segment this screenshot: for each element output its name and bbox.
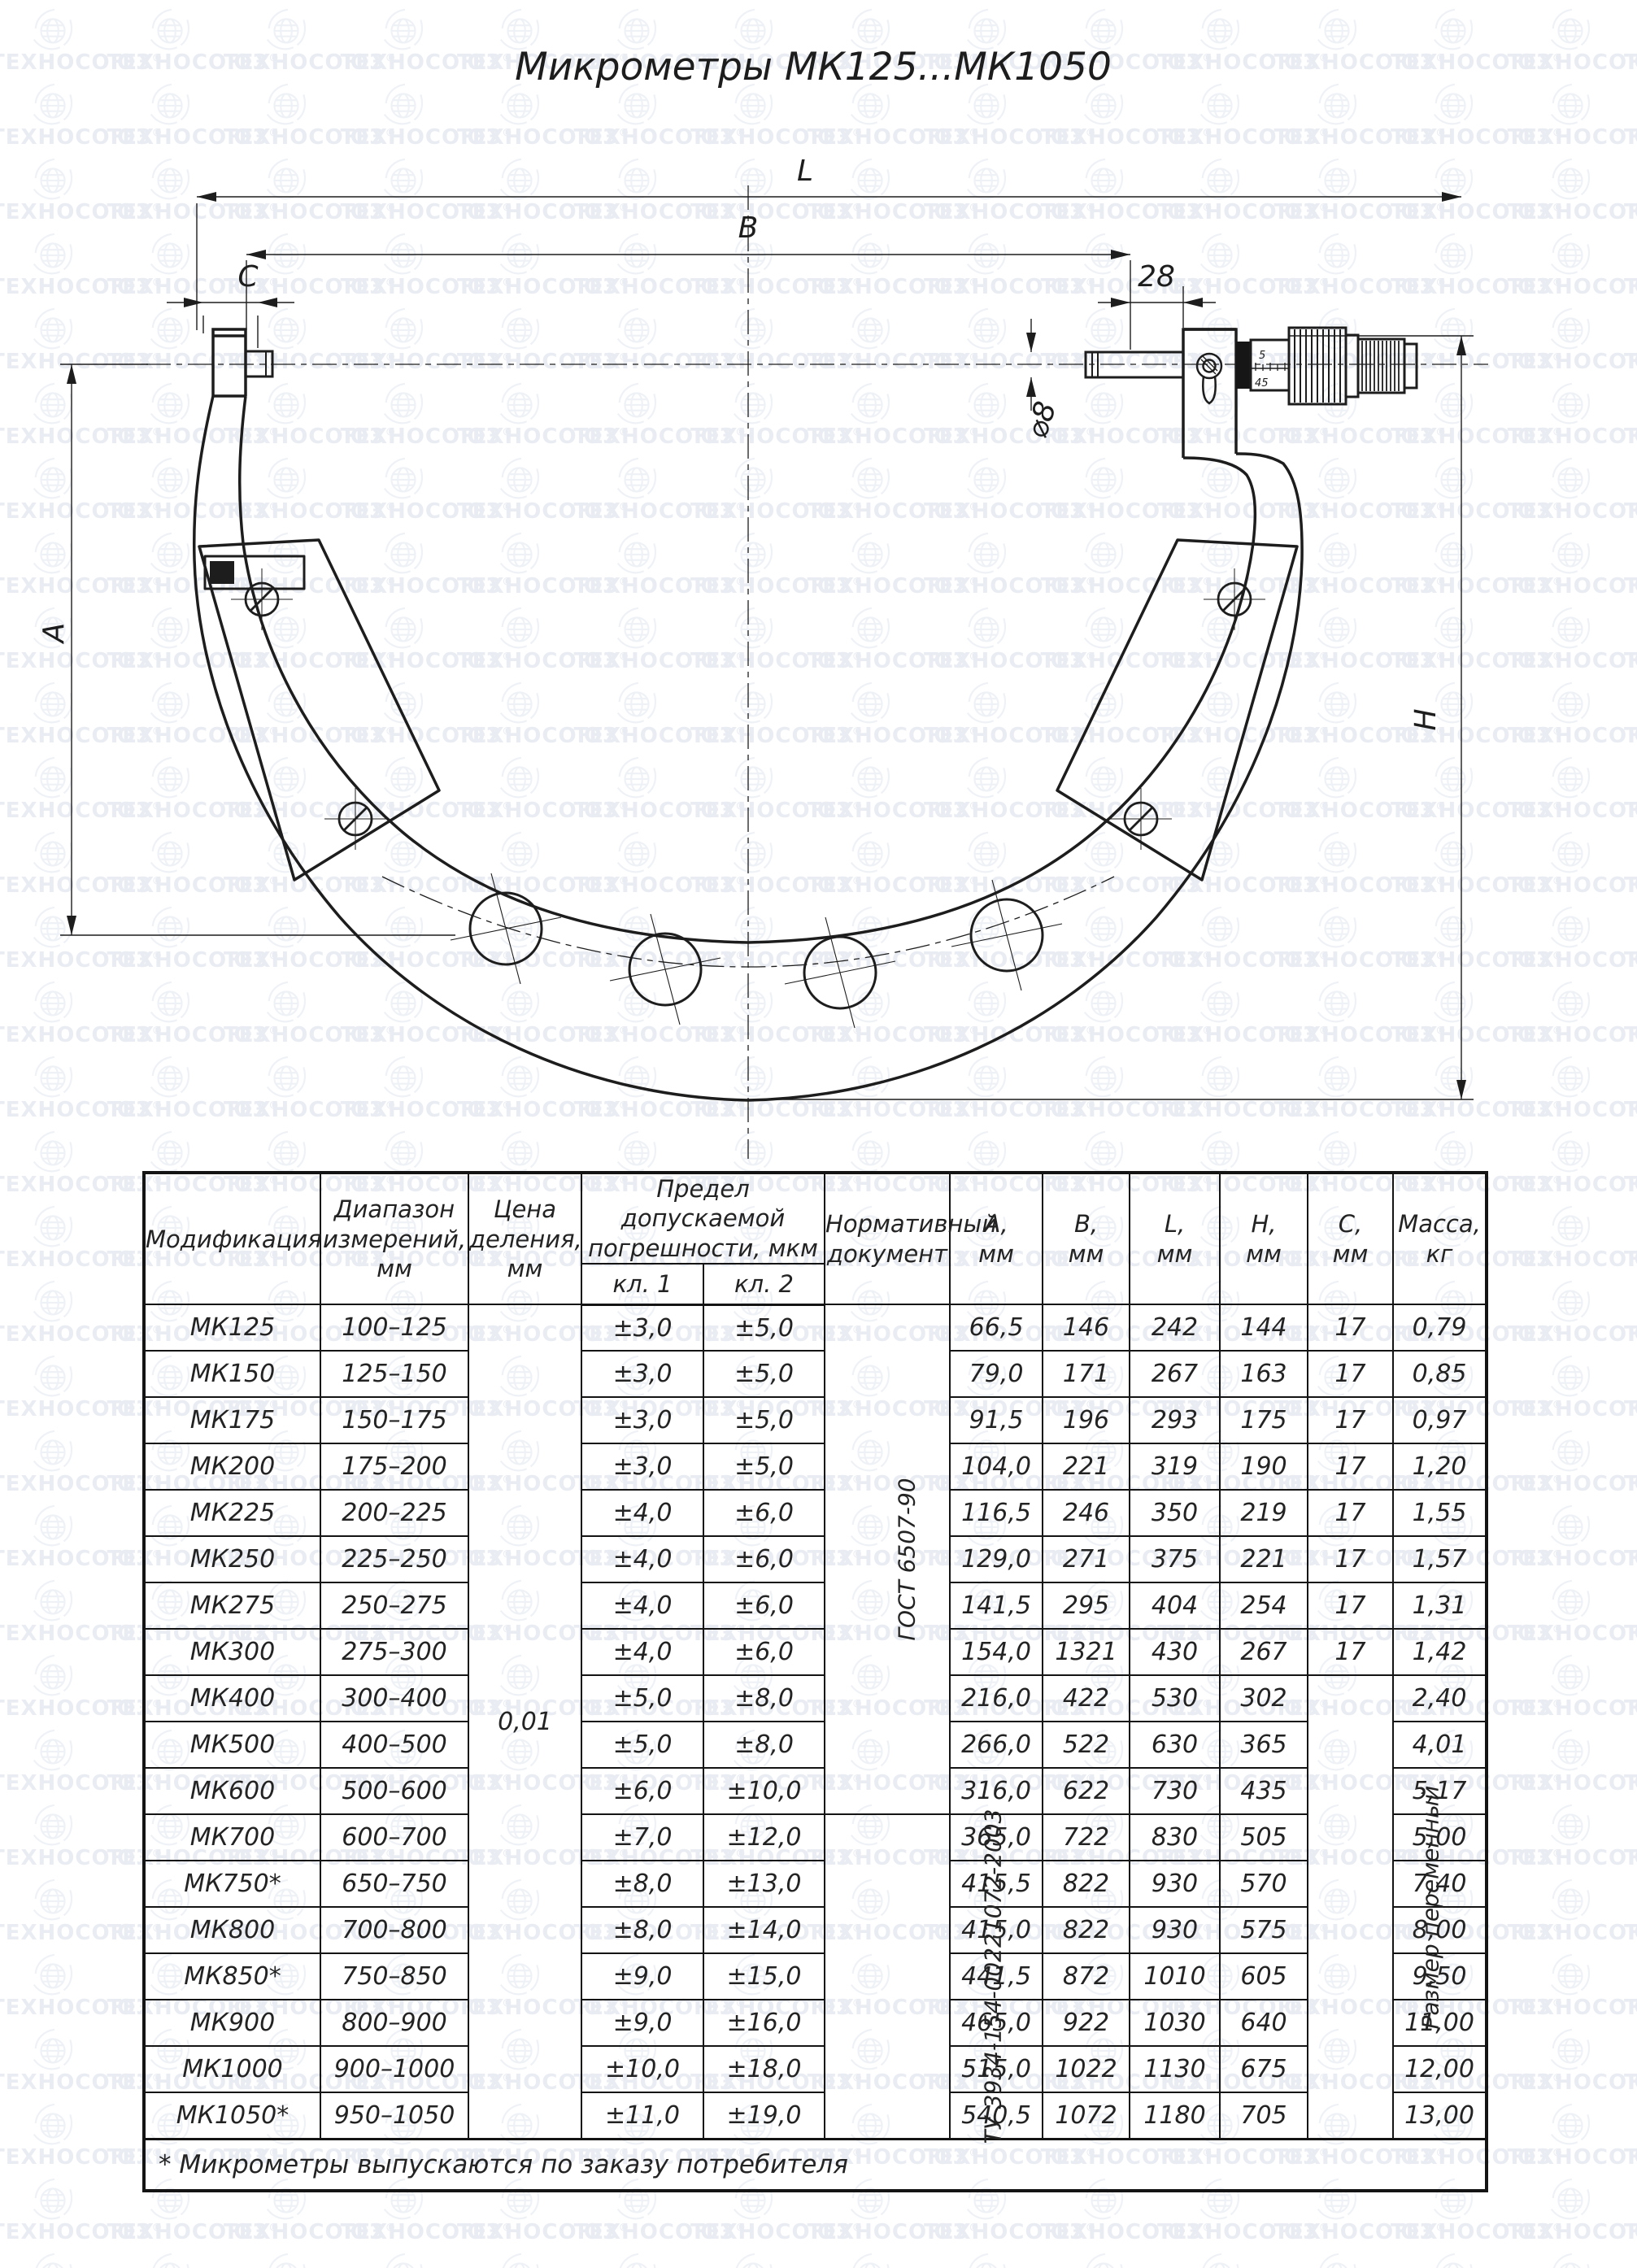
- cell-class2: ±5,0: [703, 1397, 825, 1443]
- cell-class2: ±6,0: [703, 1582, 825, 1629]
- cell-l: 630: [1130, 1722, 1220, 1768]
- cell-class2: ±13,0: [703, 1861, 825, 1907]
- cell-class1: ±4,0: [581, 1536, 703, 1582]
- watermark-globe-icon: [494, 2248, 545, 2268]
- cell-class2: ±10,0: [703, 1768, 825, 1814]
- frame-right-post: [1183, 329, 1236, 458]
- table-row: МК800700–800±8,0±14,0415,08229305758,00: [144, 1907, 1487, 1953]
- dim-label-28: 28: [1138, 260, 1175, 294]
- cell-h: 505: [1220, 1814, 1308, 1861]
- anvil-post: [213, 329, 272, 396]
- cell-l: 1030: [1130, 2000, 1220, 2046]
- cell-c: 17: [1308, 1582, 1393, 1629]
- watermark-text: ТЕХНОСОЮЗ®: [1508, 2145, 1637, 2170]
- watermark-text: ТЕХНОСОЮЗ®: [1624, 1173, 1637, 1197]
- cell-range: 175–200: [320, 1443, 468, 1490]
- cell-b: 822: [1043, 1907, 1130, 1953]
- cell-a: 66,5: [950, 1304, 1043, 1351]
- watermark-text: ТЕХНОСОЮЗ®: [1624, 1247, 1637, 1272]
- table-row: МК900800–900±9,0±16,0465,0922103064011,0…: [144, 2000, 1487, 2046]
- cell-l: 1010: [1130, 1953, 1220, 2000]
- watermark-globe-icon: [1545, 1276, 1596, 1326]
- cell-a: 266,0: [950, 1722, 1043, 1768]
- cell-class1: ±4,0: [581, 1490, 703, 1536]
- watermark-text: ТЕХНОСОЮЗ®: [1624, 1771, 1637, 1796]
- col-header-a: А, мм: [950, 1173, 1043, 1304]
- cell-class1: ±4,0: [581, 1629, 703, 1675]
- cell-h: 365: [1220, 1722, 1308, 1768]
- watermark-globe-icon: [612, 2248, 662, 2268]
- table-row: МК1050*950–1050±11,0±19,0540,51072118070…: [144, 2092, 1487, 2139]
- watermark-globe-icon: [28, 1201, 78, 1252]
- watermark-text: ТЕХНОСОЮЗ®: [1624, 1472, 1637, 1496]
- cell-mass: 1,42: [1393, 1629, 1487, 1675]
- cell-l: 1130: [1130, 2046, 1220, 2092]
- cell-h: 175: [1220, 1397, 1308, 1443]
- cell-class2: ±18,0: [703, 2046, 825, 2092]
- cell-l: 830: [1130, 1814, 1220, 1861]
- cell-a: 79,0: [950, 1351, 1043, 1397]
- cell-class2: ±8,0: [703, 1722, 825, 1768]
- cell-class1: ±4,0: [581, 1582, 703, 1629]
- dim-label-h: H: [1409, 708, 1443, 730]
- cell-h: 435: [1220, 1768, 1308, 1814]
- watermark-globe-icon: [1545, 1351, 1596, 1401]
- col-header-mass: Масса, кг: [1393, 1173, 1487, 1304]
- watermark-globe-icon: [145, 2248, 195, 2268]
- cell-modification: МК175: [144, 1397, 320, 1443]
- cell-mass: 0,79: [1393, 1304, 1487, 1351]
- cell-b: 622: [1043, 1768, 1130, 1814]
- cell-b: 171: [1043, 1351, 1130, 1397]
- cell-h: 605: [1220, 1953, 1308, 2000]
- table-body: МК125100–1250,01±3,0±5,0ГОСТ 6507-9066,5…: [144, 1304, 1487, 2139]
- cell-class1: ±9,0: [581, 1953, 703, 2000]
- watermark-text: ТЕХНОСОЮЗ®: [1508, 1247, 1637, 1272]
- watermark-text: ТЕХНОСОЮЗ®: [1508, 1696, 1637, 1721]
- cell-document-gost: ГОСТ 6507-90: [825, 1304, 950, 1814]
- watermark-text: ТЕХНОСОЮЗ®: [1508, 1622, 1637, 1646]
- dim-label-a: A: [37, 623, 71, 645]
- cell-a: 316,0: [950, 1768, 1043, 1814]
- cell-modification: МК1050*: [144, 2092, 320, 2139]
- cell-class2: ±8,0: [703, 1675, 825, 1722]
- table-row: МК250225–250±4,0±6,0129,0271375221171,57: [144, 1536, 1487, 1582]
- watermark-globe-icon: [1195, 2248, 1245, 2268]
- cell-class1: ±8,0: [581, 1907, 703, 1953]
- watermark-globe-icon: [1312, 2248, 1362, 2268]
- cell-modification: МК400: [144, 1675, 320, 1722]
- cell-range: 500–600: [320, 1768, 468, 1814]
- cell-mass: 0,85: [1393, 1351, 1487, 1397]
- watermark-text: ТЕХНОСОЮЗ®: [1624, 1322, 1637, 1347]
- cell-l: 1180: [1130, 2092, 1220, 2139]
- watermark-globe-icon: [1545, 1874, 1596, 1925]
- watermark-globe-icon: [961, 2248, 1012, 2268]
- cell-b: 146: [1043, 1304, 1130, 1351]
- cell-b: 872: [1043, 1953, 1130, 2000]
- cell-h: 144: [1220, 1304, 1308, 1351]
- cell-class1: ±3,0: [581, 1304, 703, 1351]
- cell-range: 125–150: [320, 1351, 468, 1397]
- watermark-globe-icon: [28, 1800, 78, 1850]
- col-header-b: В, мм: [1043, 1173, 1130, 1304]
- table-row: МК225200–225±4,0±6,0116,5246350219171,55: [144, 1490, 1487, 1536]
- cell-h: 640: [1220, 2000, 1308, 2046]
- cell-mass: 1,31: [1393, 1582, 1487, 1629]
- col-header-division: Цена деления, мм: [468, 1173, 581, 1304]
- cell-l: 293: [1130, 1397, 1220, 1443]
- cell-class2: ±5,0: [703, 1304, 825, 1351]
- cell-range: 700–800: [320, 1907, 468, 1953]
- cell-h: 675: [1220, 2046, 1308, 2092]
- cell-division-value: 0,01: [468, 1304, 581, 2139]
- watermark-globe-icon: [28, 2099, 78, 2149]
- cell-c-variable: Размер переменный: [1308, 1675, 1393, 2139]
- table-row: МК275250–275±4,0±6,0141,5295404254171,31: [144, 1582, 1487, 1629]
- cell-h: 570: [1220, 1861, 1308, 1907]
- document-tu-text: ТУ 3934-154-00221072-2003: [979, 1809, 1006, 2144]
- dim-label-b: B: [738, 211, 759, 245]
- cell-c: 17: [1308, 1304, 1393, 1351]
- cell-class2: ±15,0: [703, 1953, 825, 2000]
- cell-mass: 1,20: [1393, 1443, 1487, 1490]
- watermark-globe-icon: [1545, 2099, 1596, 2149]
- cell-modification: МК850*: [144, 1953, 320, 2000]
- cell-range: 900–1000: [320, 2046, 468, 2092]
- cell-mass: 1,57: [1393, 1536, 1487, 1582]
- cell-mass: 12,00: [1393, 2046, 1487, 2092]
- cell-range: 100–125: [320, 1304, 468, 1351]
- watermark-text: ТЕХНОСОЮЗ®: [1624, 1996, 1637, 2020]
- cell-b: 246: [1043, 1490, 1130, 1536]
- cell-modification: МК600: [144, 1768, 320, 1814]
- cell-l: 930: [1130, 1861, 1220, 1907]
- watermark-text: ТЕХНОСОЮЗ®: [1508, 1322, 1637, 1347]
- table-row: МК1000900–1000±10,0±18,0515,010221130675…: [144, 2046, 1487, 2092]
- watermark-text: ТЕХНОСОЮЗ®: [1508, 1173, 1637, 1197]
- cell-class2: ±5,0: [703, 1351, 825, 1397]
- col-header-c: С, мм: [1308, 1173, 1393, 1304]
- watermark-text: ТЕХНОСОЮЗ®: [1508, 1921, 1637, 1945]
- cell-class2: ±14,0: [703, 1907, 825, 1953]
- table-row: МК750*650–750±8,0±13,0415,58229305707,40: [144, 1861, 1487, 1907]
- table-row: МК400300–400±5,0±8,0216,0422530302Размер…: [144, 1675, 1487, 1722]
- catalog-page: ТЕХНОСОЮЗ®ТЕХНОСОЮЗ®ТЕХНОСОЮЗ®ТЕХНОСОЮЗ®…: [0, 0, 1637, 2268]
- watermark-globe-icon: [728, 2248, 778, 2268]
- cell-c: 17: [1308, 1490, 1393, 1536]
- watermark-text: ТЕХНОСОЮЗ®: [1624, 1622, 1637, 1646]
- page-title: Микрометры МК125...МК1050: [515, 45, 1112, 89]
- cell-range: 225–250: [320, 1536, 468, 1582]
- cell-modification: МК700: [144, 1814, 320, 1861]
- cell-b: 1022: [1043, 2046, 1130, 2092]
- cell-class2: ±6,0: [703, 1629, 825, 1675]
- cell-class1: ±9,0: [581, 2000, 703, 2046]
- cell-modification: МК750*: [144, 1861, 320, 1907]
- cell-mass: 13,00: [1393, 2092, 1487, 2139]
- cell-h: 163: [1220, 1351, 1308, 1397]
- cell-modification: МК225: [144, 1490, 320, 1536]
- watermark-globe-icon: [378, 2248, 429, 2268]
- cell-c: 17: [1308, 1351, 1393, 1397]
- dim-label-c: C: [237, 260, 259, 294]
- col-header-error-limit: Предел допускаемой погрешности, мкм: [581, 1173, 825, 1264]
- watermark-text: ТЕХНОСОЮЗ®: [1508, 1771, 1637, 1796]
- cell-range: 250–275: [320, 1582, 468, 1629]
- watermark-globe-icon: [1545, 2248, 1596, 2268]
- micrometer-head: [1236, 328, 1417, 404]
- cell-l: 530: [1130, 1675, 1220, 1722]
- cell-a: 216,0: [950, 1675, 1043, 1722]
- cell-class1: ±5,0: [581, 1675, 703, 1722]
- watermark-globe-icon: [1545, 2024, 1596, 2074]
- watermark-text: ТЕХНОСОЮЗ®: [1624, 1846, 1637, 1870]
- cell-class1: ±5,0: [581, 1722, 703, 1768]
- watermark-globe-icon: [28, 1949, 78, 2000]
- watermark-text: ТЕХНОСОЮЗ®: [1508, 1996, 1637, 2020]
- cell-range: 275–300: [320, 1629, 468, 1675]
- cell-class1: ±6,0: [581, 1768, 703, 1814]
- document-gost-text: ГОСТ 6507-90: [894, 1478, 921, 1641]
- cell-range: 600–700: [320, 1814, 468, 1861]
- watermark-text: ТЕХНОСОЮЗ®: [1508, 1472, 1637, 1496]
- cell-range: 150–175: [320, 1397, 468, 1443]
- watermark-globe-icon: [28, 1500, 78, 1551]
- cell-class2: ±19,0: [703, 2092, 825, 2139]
- lock-lever: [1197, 354, 1221, 403]
- cell-range: 800–900: [320, 2000, 468, 2046]
- cell-range: 300–400: [320, 1675, 468, 1722]
- cell-class2: ±6,0: [703, 1490, 825, 1536]
- watermark-text: ТЕХНОСОЮЗ®: [1624, 1547, 1637, 1571]
- cell-b: 422: [1043, 1675, 1130, 1722]
- cell-a: 116,5: [950, 1490, 1043, 1536]
- watermark-globe-icon: [261, 2248, 311, 2268]
- cell-c: 17: [1308, 1536, 1393, 1582]
- cell-mass: 2,40: [1393, 1675, 1487, 1722]
- cell-class1: ±3,0: [581, 1443, 703, 1490]
- cell-class2: ±5,0: [703, 1443, 825, 1490]
- watermark-text: ТЕХНОСОЮЗ®: [1508, 1397, 1637, 1421]
- watermark-text: ТЕХНОСОЮЗ®: [1508, 2220, 1637, 2244]
- col-header-range: Диапазон измерений, мм: [320, 1173, 468, 1304]
- cell-c: 17: [1308, 1397, 1393, 1443]
- cell-class1: ±11,0: [581, 2092, 703, 2139]
- cell-modification: МК150: [144, 1351, 320, 1397]
- col-header-h: Н, мм: [1220, 1173, 1308, 1304]
- cell-mass: 4,01: [1393, 1722, 1487, 1768]
- brand-label-mark: [210, 561, 234, 584]
- table-footnote: * Микрометры выпускаются по заказу потре…: [144, 2139, 1487, 2191]
- cell-a: 129,0: [950, 1536, 1043, 1582]
- cell-class1: ±3,0: [581, 1397, 703, 1443]
- cell-b: 221: [1043, 1443, 1130, 1490]
- cell-h: 302: [1220, 1675, 1308, 1722]
- c-variable-text: Размер переменный: [1417, 1785, 1443, 2029]
- cell-l: 242: [1130, 1304, 1220, 1351]
- watermark-globe-icon: [1078, 2248, 1129, 2268]
- col-header-l: L, мм: [1130, 1173, 1220, 1304]
- cell-range: 200–225: [320, 1490, 468, 1536]
- cell-l: 404: [1130, 1582, 1220, 1629]
- cell-modification: МК125: [144, 1304, 320, 1351]
- watermark-text: ТЕХНОСОЮЗ®: [1508, 1846, 1637, 1870]
- cell-l: 375: [1130, 1536, 1220, 1582]
- cell-class1: ±7,0: [581, 1814, 703, 1861]
- table-row: МК500400–500±5,0±8,0266,05226303654,01: [144, 1722, 1487, 1768]
- watermark-globe-icon: [28, 2248, 78, 2268]
- cell-h: 575: [1220, 1907, 1308, 1953]
- cell-h: 267: [1220, 1629, 1308, 1675]
- cell-b: 822: [1043, 1861, 1130, 1907]
- cell-modification: МК800: [144, 1907, 320, 1953]
- cell-b: 722: [1043, 1814, 1130, 1861]
- col-header-class1: кл. 1: [581, 1264, 703, 1305]
- watermark-globe-icon: [28, 2174, 78, 2224]
- watermark-globe-icon: [28, 1276, 78, 1326]
- dim-label-dia8: ⌀8: [1021, 398, 1064, 442]
- watermark-globe-icon: [1545, 1426, 1596, 1476]
- watermark-text: ТЕХНОСОЮЗ®: [1508, 1547, 1637, 1571]
- cell-modification: МК300: [144, 1629, 320, 1675]
- specification-table: Модификация Диапазон измерений, мм Цена …: [142, 1171, 1488, 2192]
- cell-b: 922: [1043, 2000, 1130, 2046]
- table-row: МК150125–150±3,0±5,079,0171267163170,85: [144, 1351, 1487, 1397]
- watermark-globe-icon: [28, 1351, 78, 1401]
- watermark-globe-icon: [28, 1725, 78, 1775]
- cell-range: 400–500: [320, 1722, 468, 1768]
- cell-class1: ±3,0: [581, 1351, 703, 1397]
- watermark-globe-icon: [28, 2024, 78, 2074]
- watermark-globe-icon: [28, 1650, 78, 1700]
- watermark-globe-icon: [1545, 1949, 1596, 2000]
- cell-l: 267: [1130, 1351, 1220, 1397]
- cell-modification: МК1000: [144, 2046, 320, 2092]
- cell-l: 319: [1130, 1443, 1220, 1490]
- watermark-globe-icon: [1545, 2174, 1596, 2224]
- cell-class2: ±12,0: [703, 1814, 825, 1861]
- watermark-text: ТЕХНОСОЮЗ®: [1624, 2145, 1637, 2170]
- cell-class1: ±8,0: [581, 1861, 703, 1907]
- table-row: МК125100–1250,01±3,0±5,0ГОСТ 6507-9066,5…: [144, 1304, 1487, 1351]
- table-row: МК175150–175±3,0±5,091,5196293175170,97: [144, 1397, 1487, 1443]
- watermark-text: ТЕХНОСОЮЗ®: [1624, 2220, 1637, 2244]
- watermark-text: ТЕХНОСОЮЗ®: [1624, 1397, 1637, 1421]
- cell-modification: МК200: [144, 1443, 320, 1490]
- table-row: МК200175–200±3,0±5,0104,0221319190171,20: [144, 1443, 1487, 1490]
- micrometer-technical-drawing: Микрометры МК125...МК1050: [0, 0, 1637, 1175]
- watermark-globe-icon: [1545, 1575, 1596, 1626]
- cell-c: 17: [1308, 1443, 1393, 1490]
- cell-b: 1072: [1043, 2092, 1130, 2139]
- cell-b: 1321: [1043, 1629, 1130, 1675]
- cell-a: 154,0: [950, 1629, 1043, 1675]
- cell-l: 930: [1130, 1907, 1220, 1953]
- cell-l: 730: [1130, 1768, 1220, 1814]
- cell-c: 17: [1308, 1629, 1393, 1675]
- frame-holes: [451, 873, 1062, 1028]
- cell-modification: МК275: [144, 1582, 320, 1629]
- watermark-text: ТЕХНОСОЮЗ®: [1624, 2070, 1637, 2095]
- table-row: МК850*750–850±9,0±15,0441,587210106059,5…: [144, 1953, 1487, 2000]
- watermark-globe-icon: [1545, 1650, 1596, 1700]
- cell-b: 295: [1043, 1582, 1130, 1629]
- cell-h: 219: [1220, 1490, 1308, 1536]
- watermark-text: ТЕХНОСОЮЗ®: [1624, 1696, 1637, 1721]
- watermark-globe-icon: [1545, 1800, 1596, 1850]
- cell-range: 950–1050: [320, 2092, 468, 2139]
- cell-a: 91,5: [950, 1397, 1043, 1443]
- cell-h: 221: [1220, 1536, 1308, 1582]
- cell-modification: МК500: [144, 1722, 320, 1768]
- cell-class2: ±6,0: [703, 1536, 825, 1582]
- cell-mass: 0,97: [1393, 1397, 1487, 1443]
- watermark-globe-icon: [28, 1874, 78, 1925]
- cell-mass: 1,55: [1393, 1490, 1487, 1536]
- cell-range: 750–850: [320, 1953, 468, 2000]
- cell-document-tu: ТУ 3934-154-00221072-2003: [825, 1814, 950, 2139]
- cell-l: 430: [1130, 1629, 1220, 1675]
- cell-b: 196: [1043, 1397, 1130, 1443]
- col-header-modification: Модификация: [144, 1173, 320, 1304]
- cell-b: 522: [1043, 1722, 1130, 1768]
- cell-a: 141,5: [950, 1582, 1043, 1629]
- dim-label-l: L: [797, 155, 813, 188]
- watermark-globe-icon: [845, 2248, 895, 2268]
- cell-h: 254: [1220, 1582, 1308, 1629]
- watermark-globe-icon: [1545, 1500, 1596, 1551]
- col-header-document: Нормативный документ: [825, 1173, 950, 1304]
- sleeve-mark-45: 45: [1255, 377, 1269, 390]
- cell-range: 650–750: [320, 1861, 468, 1907]
- watermark-globe-icon: [1428, 2248, 1478, 2268]
- cell-l: 350: [1130, 1490, 1220, 1536]
- sleeve-mark-5: 5: [1259, 350, 1265, 362]
- watermark-text: ТЕХНОСОЮЗ®: [1624, 1921, 1637, 1945]
- table-row: МК300275–300±4,0±6,0154,01321430267171,4…: [144, 1629, 1487, 1675]
- watermark-text: ТЕХНОСОЮЗ®: [1508, 2070, 1637, 2095]
- table-row: МК700600–700±7,0±12,0ТУ 3934-154-0022107…: [144, 1814, 1487, 1861]
- cell-b: 271: [1043, 1536, 1130, 1582]
- cell-class2: ±16,0: [703, 2000, 825, 2046]
- cell-h: 705: [1220, 2092, 1308, 2139]
- table-row: МК600500–600±6,0±10,0316,06227304355,17: [144, 1768, 1487, 1814]
- watermark-globe-icon: [28, 1426, 78, 1476]
- col-header-class2: кл. 2: [703, 1264, 825, 1305]
- dimension-arrows: [67, 192, 1466, 1099]
- cell-modification: МК900: [144, 2000, 320, 2046]
- cell-modification: МК250: [144, 1536, 320, 1582]
- watermark-globe-icon: [1545, 1201, 1596, 1252]
- cell-a: 104,0: [950, 1443, 1043, 1490]
- watermark-globe-icon: [28, 1575, 78, 1626]
- cell-class1: ±10,0: [581, 2046, 703, 2092]
- cell-h: 190: [1220, 1443, 1308, 1490]
- watermark-globe-icon: [1545, 1725, 1596, 1775]
